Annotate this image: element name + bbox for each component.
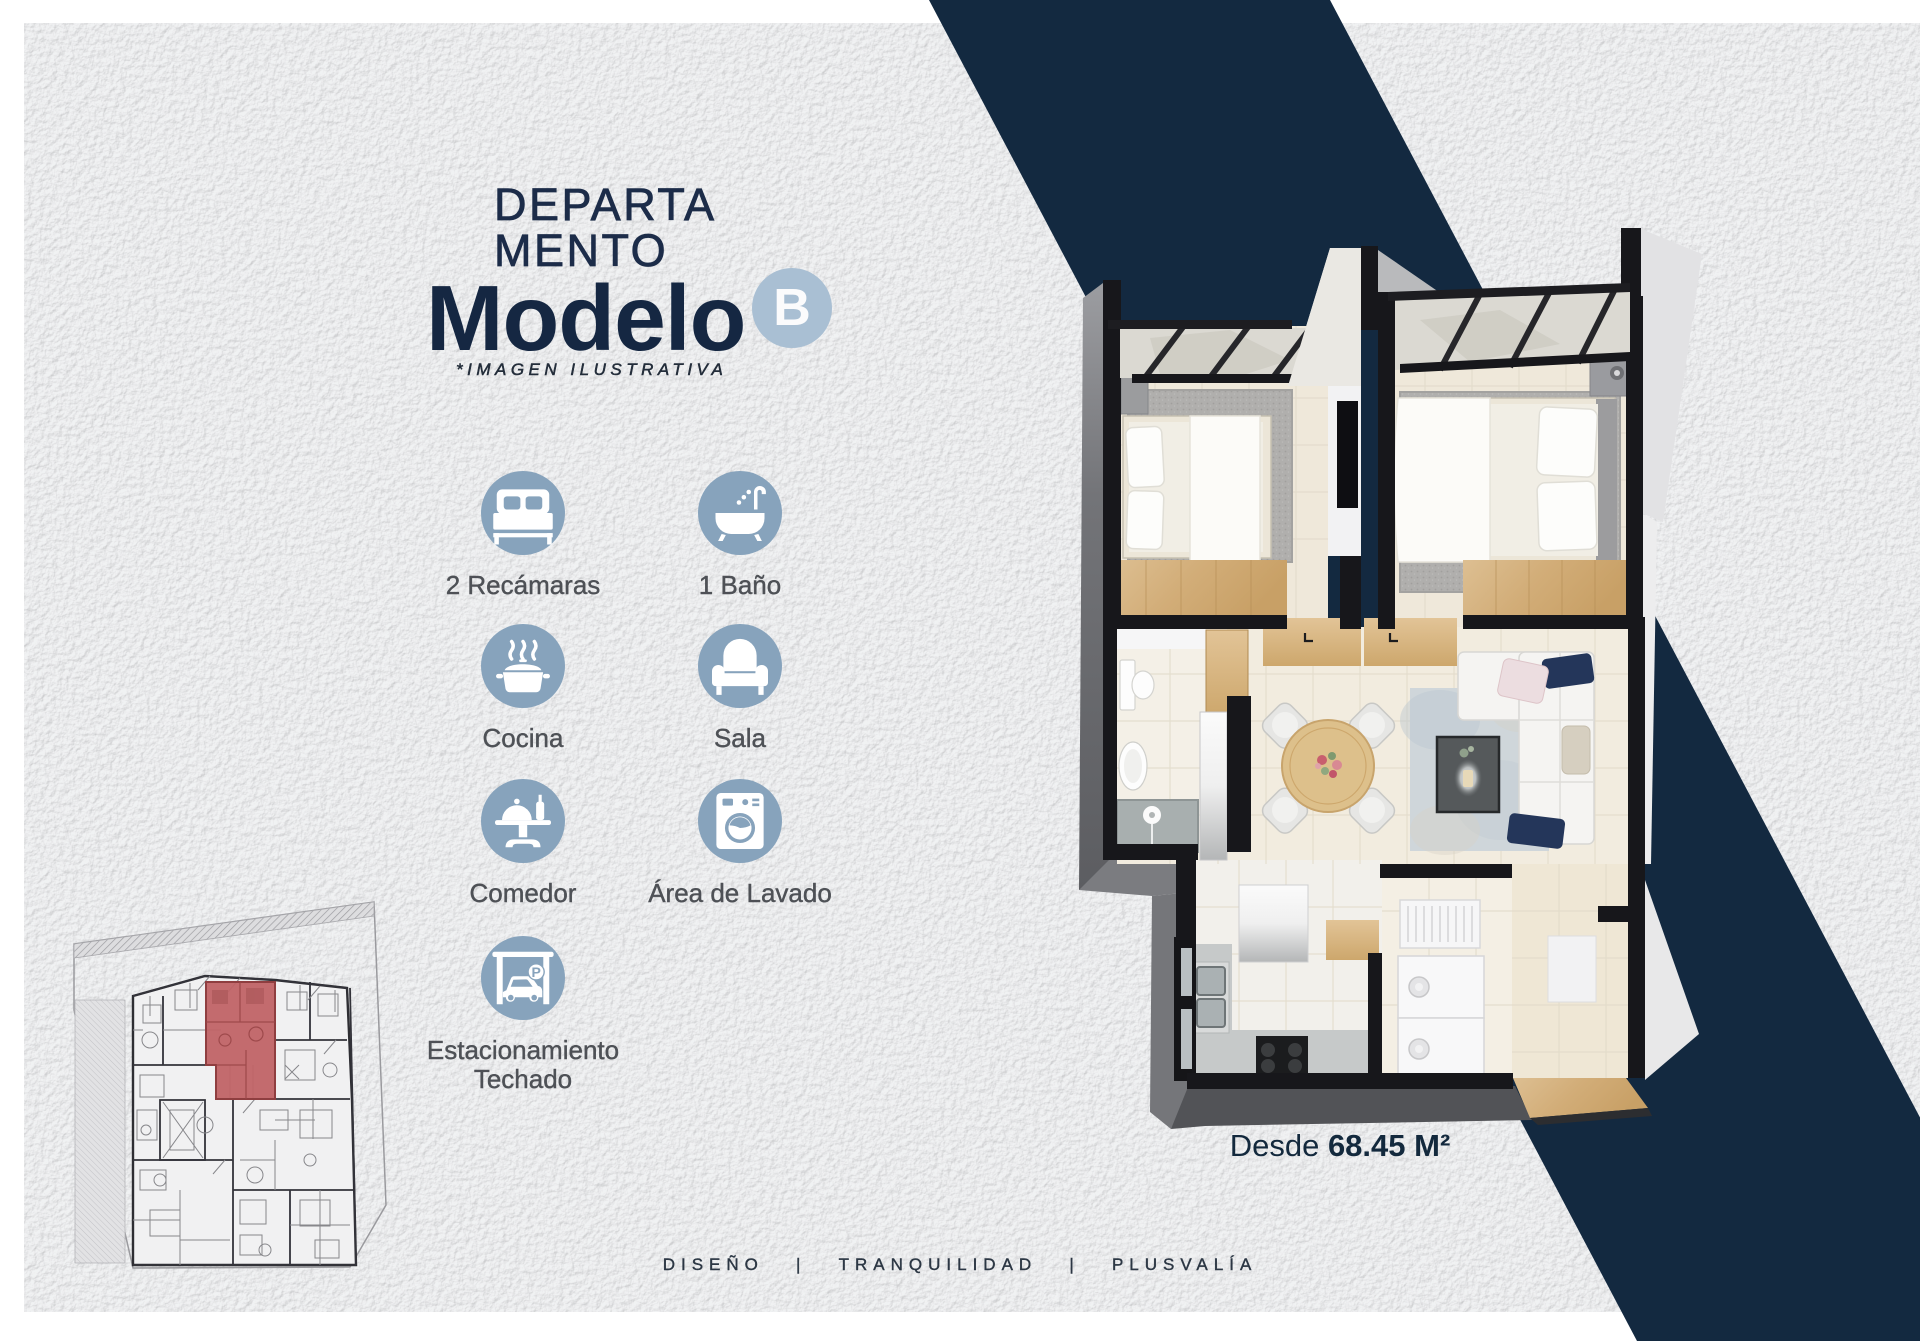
svg-text:P: P (531, 964, 540, 980)
